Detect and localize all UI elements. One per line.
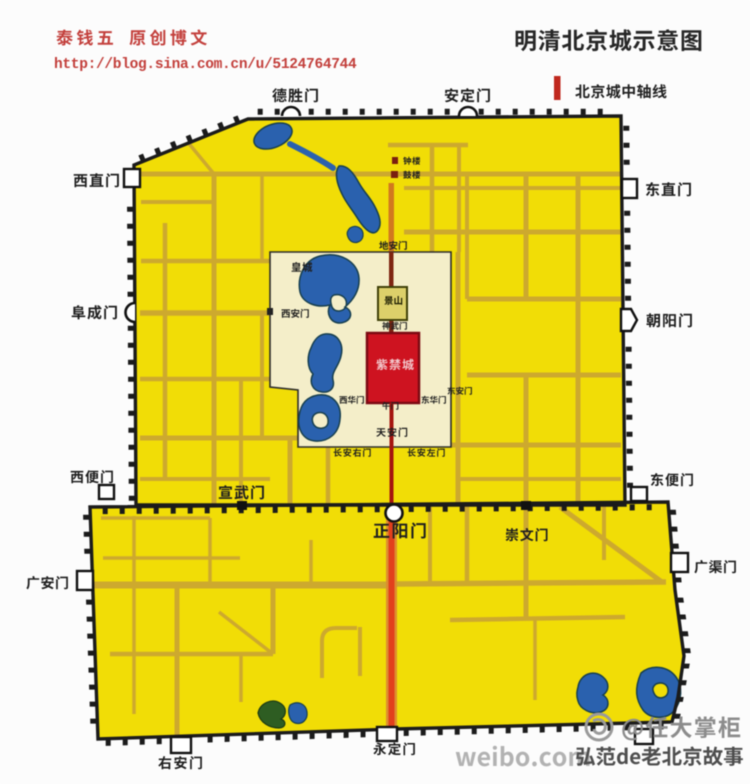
svg-text:http://blog.sina.com.cn/u/5124: http://blog.sina.com.cn/u/5124764744: [54, 57, 357, 73]
